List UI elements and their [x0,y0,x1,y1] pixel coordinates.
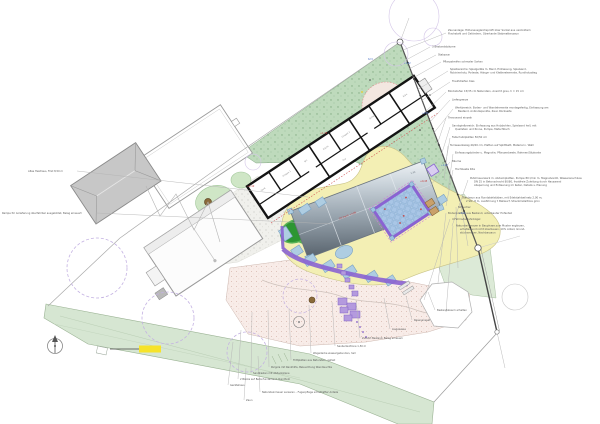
annotation: Natursteinmauer sanieren – Fugenpflege s… [262,390,339,394]
annotation: stücksmauer, Nachbarzaun [460,231,496,235]
annotation: 2 Stk. 8 m, Ausführung f. Ballwurf, Stre… [466,199,540,203]
survey-point-icon [495,330,499,334]
annotation: Sträucher [458,205,472,209]
annotation: Sandspielbereich: Einfassung aus Holzboh… [452,124,536,128]
annotation: Blockstufen 15/35 cm Naturstein, Ansicht… [448,89,524,93]
level-red: +0,45 [420,180,428,183]
annotation: Rampe für Anlieferung überfahrbar ausgeb… [2,211,82,215]
annotation: Absperrung und Entleerung im Keller, Det… [474,183,547,187]
annotation: erhalten und nicht überbauen, 10% Anteil… [460,227,525,231]
level-blue: 62,5 [368,58,373,61]
annotation: Natursteinmauer in Bauphase zum Muster e… [456,224,525,228]
annotation: Bestand, Anbindepunkte, Zaun Rückseite [458,109,512,113]
annotation: Spielbereiche: Spielgeräte m. Band, Einf… [450,67,527,71]
annotation: Stabzaun [438,53,450,57]
annotation: Hochbeete Kita [455,167,475,171]
annotation: Trittplatten aus Naturstein, gefast [293,358,335,362]
annotation: Wegedecke wassergebunden, hell [313,351,356,355]
annotation: Zaunanlage: Höhenausgleichsprofil über S… [448,28,531,32]
annotation: Terrassenbelag 40/40 cm, Platten auf Spl… [450,143,534,147]
annotation: Rasenansaat [414,318,430,322]
level-blue: +0,40 [459,212,466,215]
annotation: Einfassungsbänder u. Magnolie, Pflanzenb… [455,151,541,155]
annotation: Quellstein und Rinne, Pumpe, Matschtisch [455,127,510,131]
annotation: Trennwand einzeln [448,116,473,120]
annotation: Sandkasten mit Abdeckplane [253,371,290,375]
annotation: Zufahrt Bestand, Belag erneuern [362,336,404,340]
survey-point-icon [475,245,481,251]
level-red: +1,10 [247,185,255,188]
site-plan-canvas: OK Dach +3,85 5,80 2,60 [0,0,600,424]
annotation: Flachstahl und Geländern, Oberkante Stab… [448,32,519,36]
annotation: Stahlzaun aus Rundstahlstäben, mit Edels… [462,196,542,200]
annotation: 4 Fahrradanlehnbügel [452,217,481,221]
annotation: Putzmauerwerk m. Abdeckplatten, Pumpe 80… [470,176,582,180]
annotation: Sauberlaufzone 1,50 m [337,344,367,348]
tree-trunk-icon [309,297,315,303]
annotation: Gerätehaus [230,383,245,387]
annotation: Liefergrenze [452,98,469,102]
north-arrow [48,335,63,354]
annotation: Werkbereich: Boden- und Wandelemente mon… [455,106,549,110]
level-red: +1,35 [320,132,328,135]
annotation: Fallschutzplatten 50/50 cm [452,135,488,139]
annotation: Altes Heizhaus, First 8,50 m [28,169,63,173]
annotation: Traufstreifen Kies [452,79,475,83]
annotation: Bäume [452,159,462,163]
annotation: Robinienholz, Podeste, Hänge- und Klette… [450,71,537,75]
annotation: Zaun [246,398,253,402]
site-plan-page: OK Dach +3,85 5,80 2,60 [0,0,600,424]
annotation: Pergola mit Rankhilfe, Beleuchtung Wandl… [271,365,333,369]
level-blue: +0,48 [441,164,448,167]
level-blue: +0,62 [404,62,411,65]
level-blue: +0,55 [422,112,429,115]
annotation: Liegewiese [392,327,406,331]
annotation: Pflanzstreifen schmaler Sorten [443,60,483,64]
annotation: Bodenplatten aus Bestand, unterbauter Ho… [448,211,512,215]
annotation: Bestandsbaum erhalten [437,308,467,312]
annotation: DN 25 in Betonschacht 80/80, frostfreie … [474,180,562,184]
yellow-highlight-swatch [139,346,161,353]
annotation: 3 Bestandsbäume [432,45,456,49]
annotation: 2 Bänke auf Betonfundament, Rundholz [240,377,291,381]
